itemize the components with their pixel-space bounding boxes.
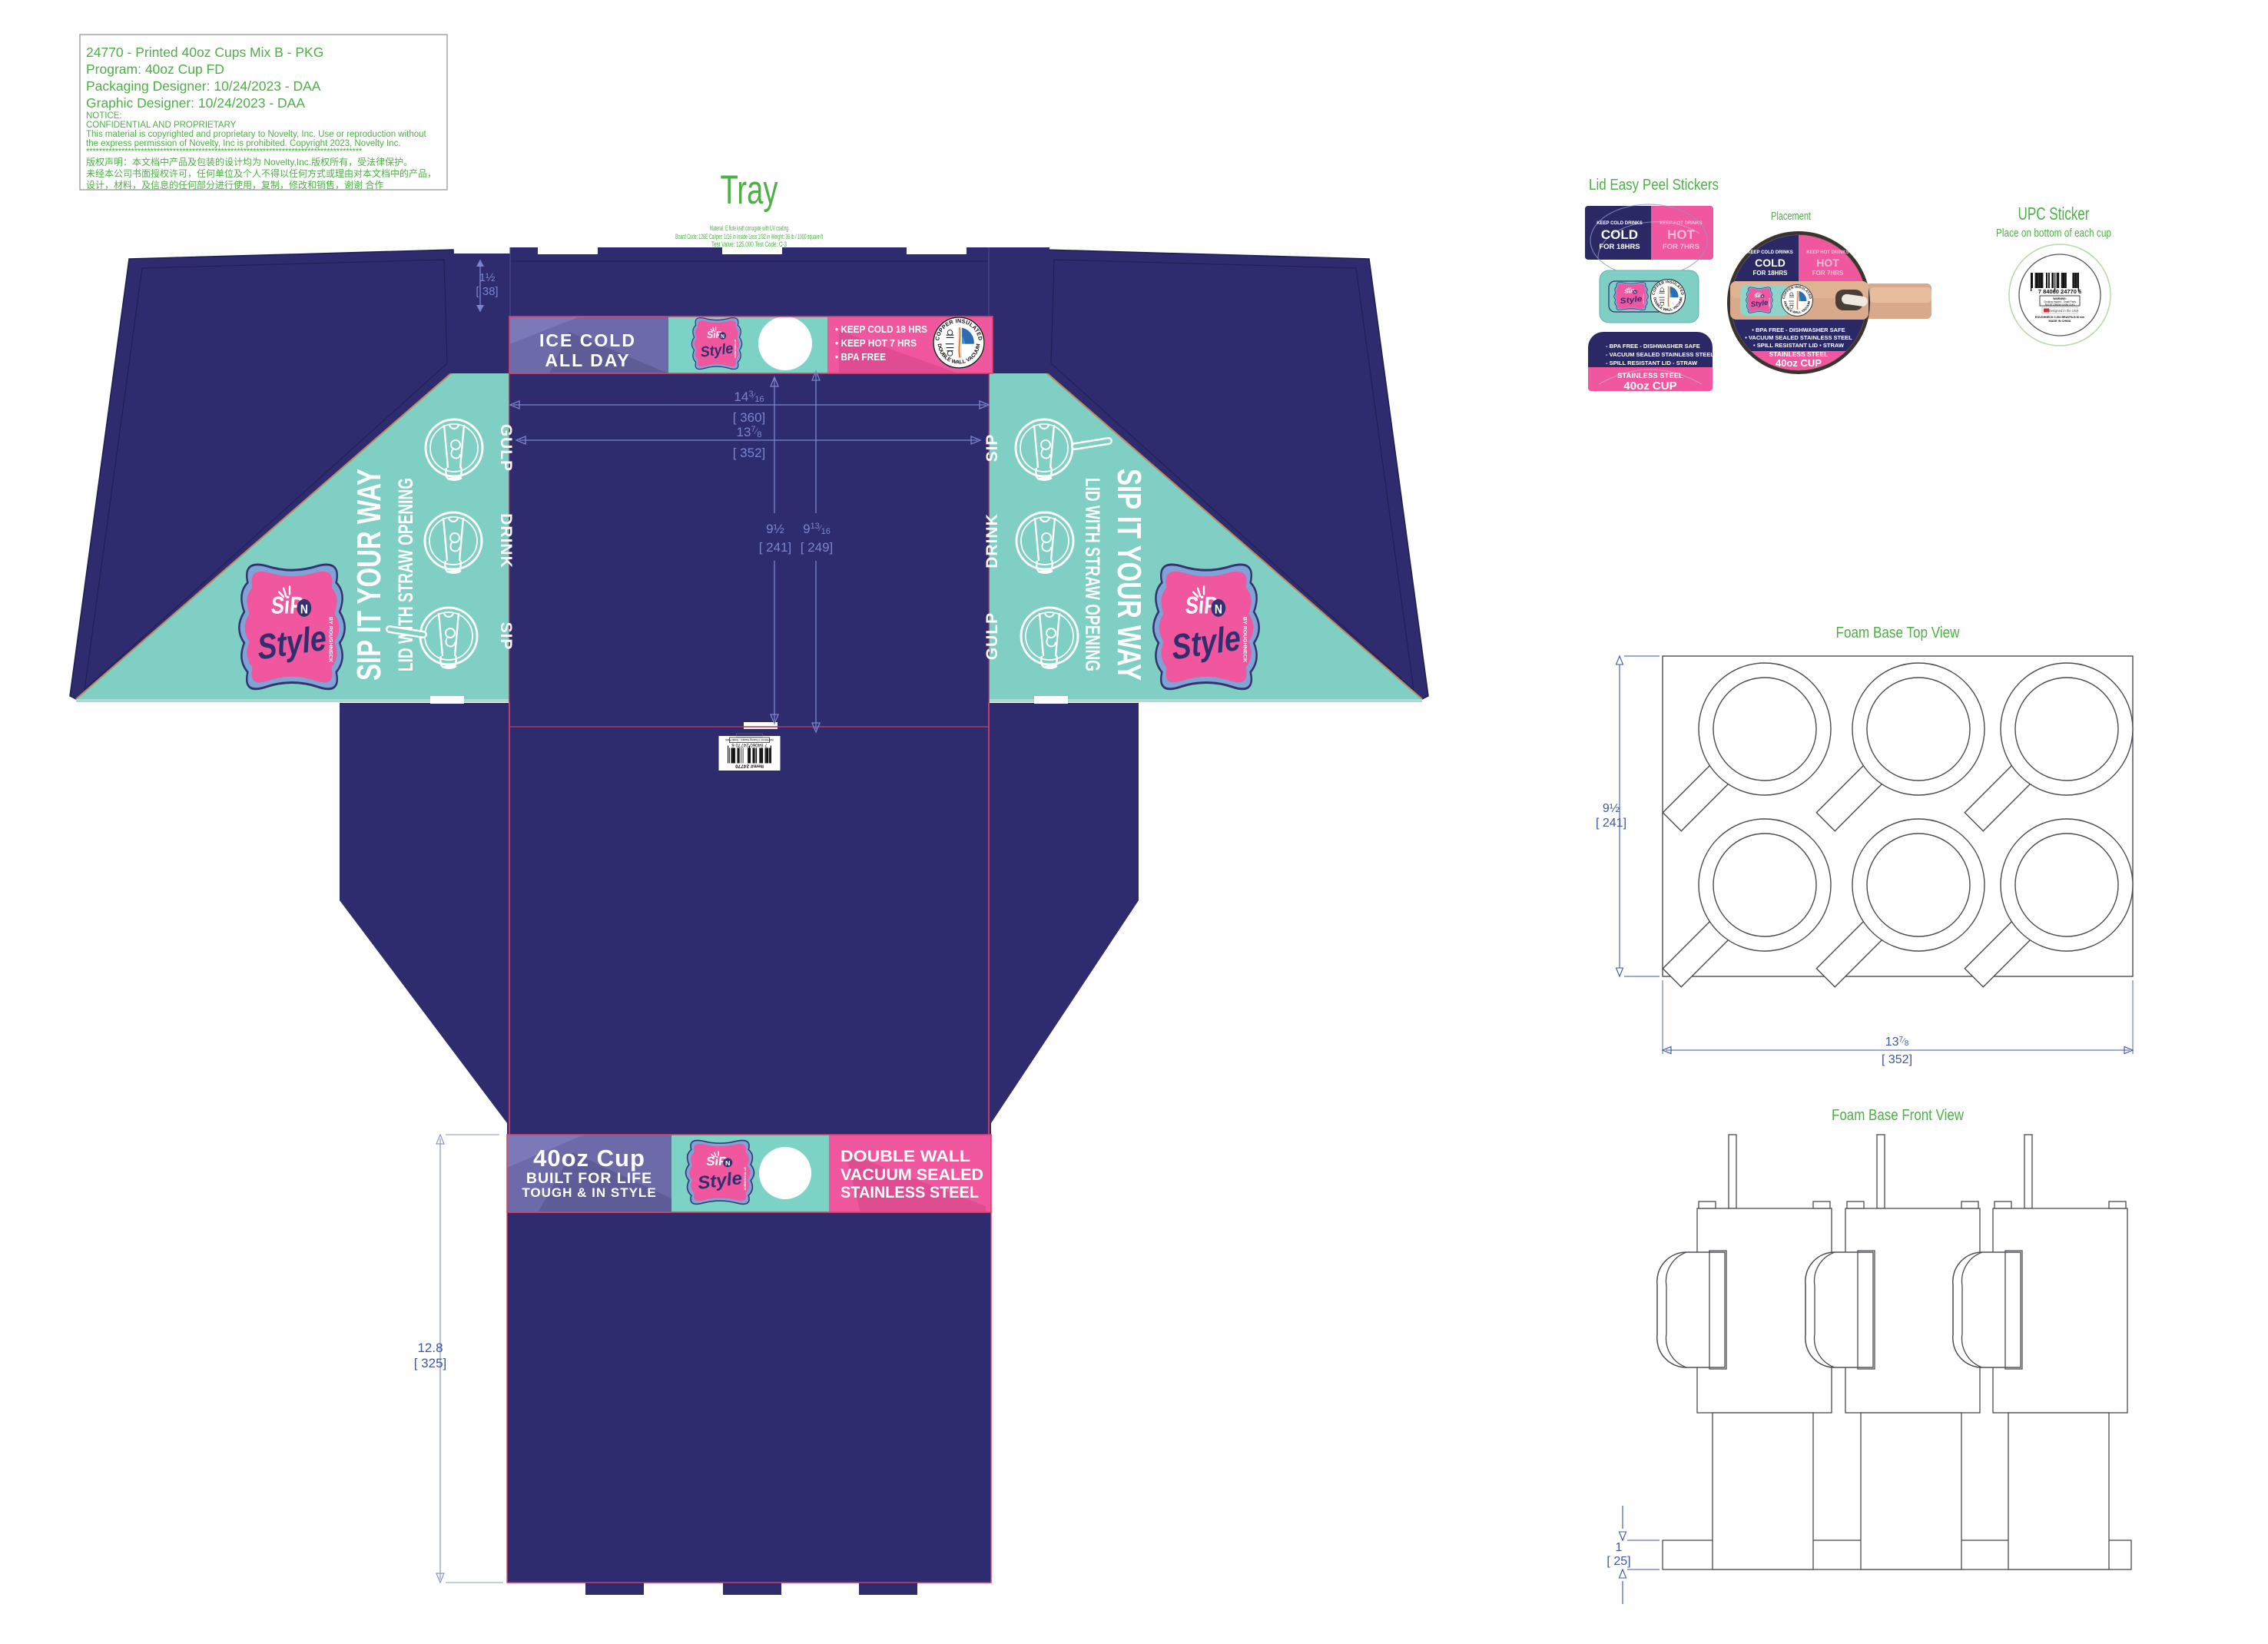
svg-text:[ 38]: [ 38] — [476, 285, 498, 298]
svg-text:未经本公司书面授权许可，任何单位及个人不得以任何方式或理由对: 未经本公司书面授权许可，任何单位及个人不得以任何方式或理由对本文档中的产品， — [86, 167, 436, 179]
svg-text:设计，材料，及信息的任何部分进行使用，复制，修改和销售，谢谢: 设计，材料，及信息的任何部分进行使用，复制，修改和销售，谢谢 合作 — [86, 179, 383, 191]
svg-text:LID WITH STRAW OPENING: LID WITH STRAW OPENING — [394, 478, 417, 671]
svg-text:Material: E flute kraft corrug: Material: E flute kraft corrugate with U… — [710, 224, 788, 232]
svg-text:1½: 1½ — [479, 271, 496, 284]
svg-text:- BPA FREE - DISHWASHER SAFE: - BPA FREE - DISHWASHER SAFE — [1606, 343, 1700, 350]
svg-text:9½: 9½ — [1603, 802, 1620, 815]
svg-text:UPC Sticker: UPC Sticker — [2018, 204, 2090, 224]
svg-text:GULP: GULP — [497, 424, 515, 472]
svg-text:Packaging Designer: 10/24/2023: Packaging Designer: 10/24/2023 - DAA — [86, 78, 321, 94]
svg-text:[ 25]: [ 25] — [1606, 1555, 1630, 1568]
svg-text:KEEP HOT DRINKS: KEEP HOT DRINKS — [1806, 250, 1849, 255]
svg-text:SIP: SIP — [497, 622, 515, 651]
svg-text:• VACUUM SEALED STAINLESS STEE: • VACUUM SEALED STAINLESS STEEL — [1745, 334, 1852, 341]
svg-text:CONFIDENTIAL AND PROPRIETARY: CONFIDENTIAL AND PROPRIETARY — [86, 121, 237, 130]
svg-text:[ 352]: [ 352] — [733, 446, 766, 460]
svg-text:40oz Cup: 40oz Cup — [533, 1145, 645, 1172]
svg-text:137⁄8: 137⁄8 — [1885, 1036, 1909, 1049]
svg-text:FOR 7HRS: FOR 7HRS — [1812, 270, 1844, 277]
svg-text:ICE COLD: ICE COLD — [539, 330, 636, 350]
svg-text:FOR 18HRS: FOR 18HRS — [1753, 270, 1789, 277]
svg-text:• BPA FREE - DISHWASHER SAFE: • BPA FREE - DISHWASHER SAFE — [1752, 326, 1845, 333]
svg-text:MADE IN CHINA: MADE IN CHINA — [2048, 320, 2071, 323]
svg-text:******************************: ****************************************… — [86, 147, 363, 157]
svg-text:Designed in the USA: Designed in the USA — [739, 734, 761, 737]
svg-text:Graphic Designer: 10/24/2023 -: Graphic Designer: 10/24/2023 - DAA — [86, 95, 305, 111]
svg-text:• BPA FREE: • BPA FREE — [835, 352, 886, 363]
svg-text:FOR 18HRS: FOR 18HRS — [1599, 243, 1640, 251]
svg-text:ROUGHNECK 0.354 BRAVPA.B.M mm: ROUGHNECK 0.354 BRAVPA.B.M mm — [2035, 316, 2084, 319]
svg-text:Test Value: 125.000 Test Cod: Test Value: 125.000 Test Code: C-3 — [711, 240, 787, 248]
svg-text:[ 352]: [ 352] — [1882, 1053, 1912, 1066]
svg-text:Foam Base Top View: Foam Base Top View — [1836, 624, 1960, 641]
svg-text:DRINK: DRINK — [983, 513, 1001, 568]
svg-text:版权声明：本文档中产品及包装的设计均为 Novelty,In: 版权声明：本文档中产品及包装的设计均为 Novelty,Inc.版权所有，受法律… — [86, 156, 413, 167]
svg-text:Tray: Tray — [721, 167, 778, 213]
svg-text:7 84060 24770 6: 7 84060 24770 6 — [2038, 288, 2081, 295]
svg-text:[ 241]: [ 241] — [759, 540, 792, 555]
svg-text:- SPILL RESISTANT LID - STRAW: - SPILL RESISTANT LID - STRAW — [1606, 360, 1698, 366]
svg-text:24770 - Printed 40oz Cups Mix: 24770 - Printed 40oz Cups Mix B - PKG — [86, 45, 323, 60]
svg-text:HOT: HOT — [1816, 257, 1839, 269]
svg-text:NOTICE:: NOTICE: — [86, 111, 122, 121]
svg-text:VACUUM SEALED: VACUUM SEALED — [841, 1165, 983, 1184]
svg-text:GULP: GULP — [983, 612, 1001, 660]
svg-text:Lid Easy Peel Stickers: Lid Easy Peel Stickers — [1589, 176, 1719, 194]
svg-text:Foam Base Front View: Foam Base Front View — [1832, 1106, 1964, 1124]
svg-text:[ 360]: [ 360] — [733, 410, 766, 425]
svg-text:KEEP HOT DRINKS: KEEP HOT DRINKS — [1660, 221, 1702, 226]
svg-text:40oz CUP: 40oz CUP — [1776, 357, 1822, 369]
svg-text:COLD: COLD — [1755, 257, 1786, 269]
svg-text:• KEEP COLD 18 HRS: • KEEP COLD 18 HRS — [835, 324, 927, 335]
svg-text:FOR 7HRS: FOR 7HRS — [1663, 243, 1699, 251]
svg-text:Item# 24770: Item# 24770 — [735, 764, 764, 769]
svg-text:TOUGH & IN STYLE: TOUGH & IN STYLE — [522, 1185, 656, 1200]
svg-text:COLD: COLD — [1601, 227, 1638, 242]
svg-text:9½: 9½ — [766, 522, 784, 536]
svg-text:Designed in the USA: Designed in the USA — [2049, 309, 2079, 313]
svg-text:12.8: 12.8 — [417, 1341, 443, 1355]
svg-text:[ 241]: [ 241] — [1596, 817, 1626, 830]
svg-text:STAINLESS STEEL: STAINLESS STEEL — [841, 1183, 979, 1202]
svg-text:Placement: Placement — [1771, 210, 1811, 223]
svg-text:Board Code: 126E Caliper: 1/: Board Code: 126E Caliper: 1/16 in Inside… — [675, 233, 823, 240]
svg-text:This material is copyrighted a: This material is copyrighted and proprie… — [86, 130, 427, 139]
svg-text:SIP IT YOUR WAY: SIP IT YOUR WAY — [1110, 469, 1148, 681]
svg-text:DOUBLE WALL: DOUBLE WALL — [841, 1147, 970, 1165]
svg-text:BUILT FOR LIFE: BUILT FOR LIFE — [526, 1170, 652, 1187]
svg-text:SIP: SIP — [983, 434, 1001, 462]
svg-text:KEEP COLD DRINKS: KEEP COLD DRINKS — [1747, 250, 1793, 255]
svg-text:[ 249]: [ 249] — [801, 540, 834, 555]
svg-text:Place on bottom of each cup: Place on bottom of each cup — [1996, 227, 2111, 240]
svg-text:• SPILL RESISTANT LID • STRAW: • SPILL RESISTANT LID • STRAW — [1753, 342, 1845, 349]
svg-text:1: 1 — [1616, 1541, 1623, 1554]
svg-text:ALL DAY: ALL DAY — [545, 350, 630, 370]
svg-text:[ 325]: [ 325] — [414, 1356, 447, 1371]
svg-text:- VACUUM SEALED STAINLESS STEE: - VACUUM SEALED STAINLESS STEEL — [1606, 351, 1714, 358]
svg-text:DRINK: DRINK — [497, 513, 515, 568]
svg-text:Not for children under 3 yrs: Not for children under 3 yrs — [2045, 303, 2075, 307]
svg-text:WARNING: Choking Hazard - Smal: WARNING: Choking Hazard - Small Parts — [725, 738, 774, 741]
svg-text:SIP IT YOUR WAY: SIP IT YOUR WAY — [350, 469, 388, 681]
svg-text:7 84060 24770 6: 7 84060 24770 6 — [731, 742, 768, 747]
svg-text:KEEP COLD DRINKS: KEEP COLD DRINKS — [1597, 221, 1643, 226]
svg-text:HOT: HOT — [1667, 227, 1696, 242]
svg-text:40oz CUP: 40oz CUP — [1623, 380, 1676, 393]
svg-text:• KEEP HOT 7 HRS: • KEEP HOT 7 HRS — [835, 338, 917, 349]
svg-text:LID WITH STRAW OPENING: LID WITH STRAW OPENING — [1081, 478, 1104, 671]
svg-text:Program: 40oz Cup FD: Program: 40oz Cup FD — [86, 61, 224, 77]
